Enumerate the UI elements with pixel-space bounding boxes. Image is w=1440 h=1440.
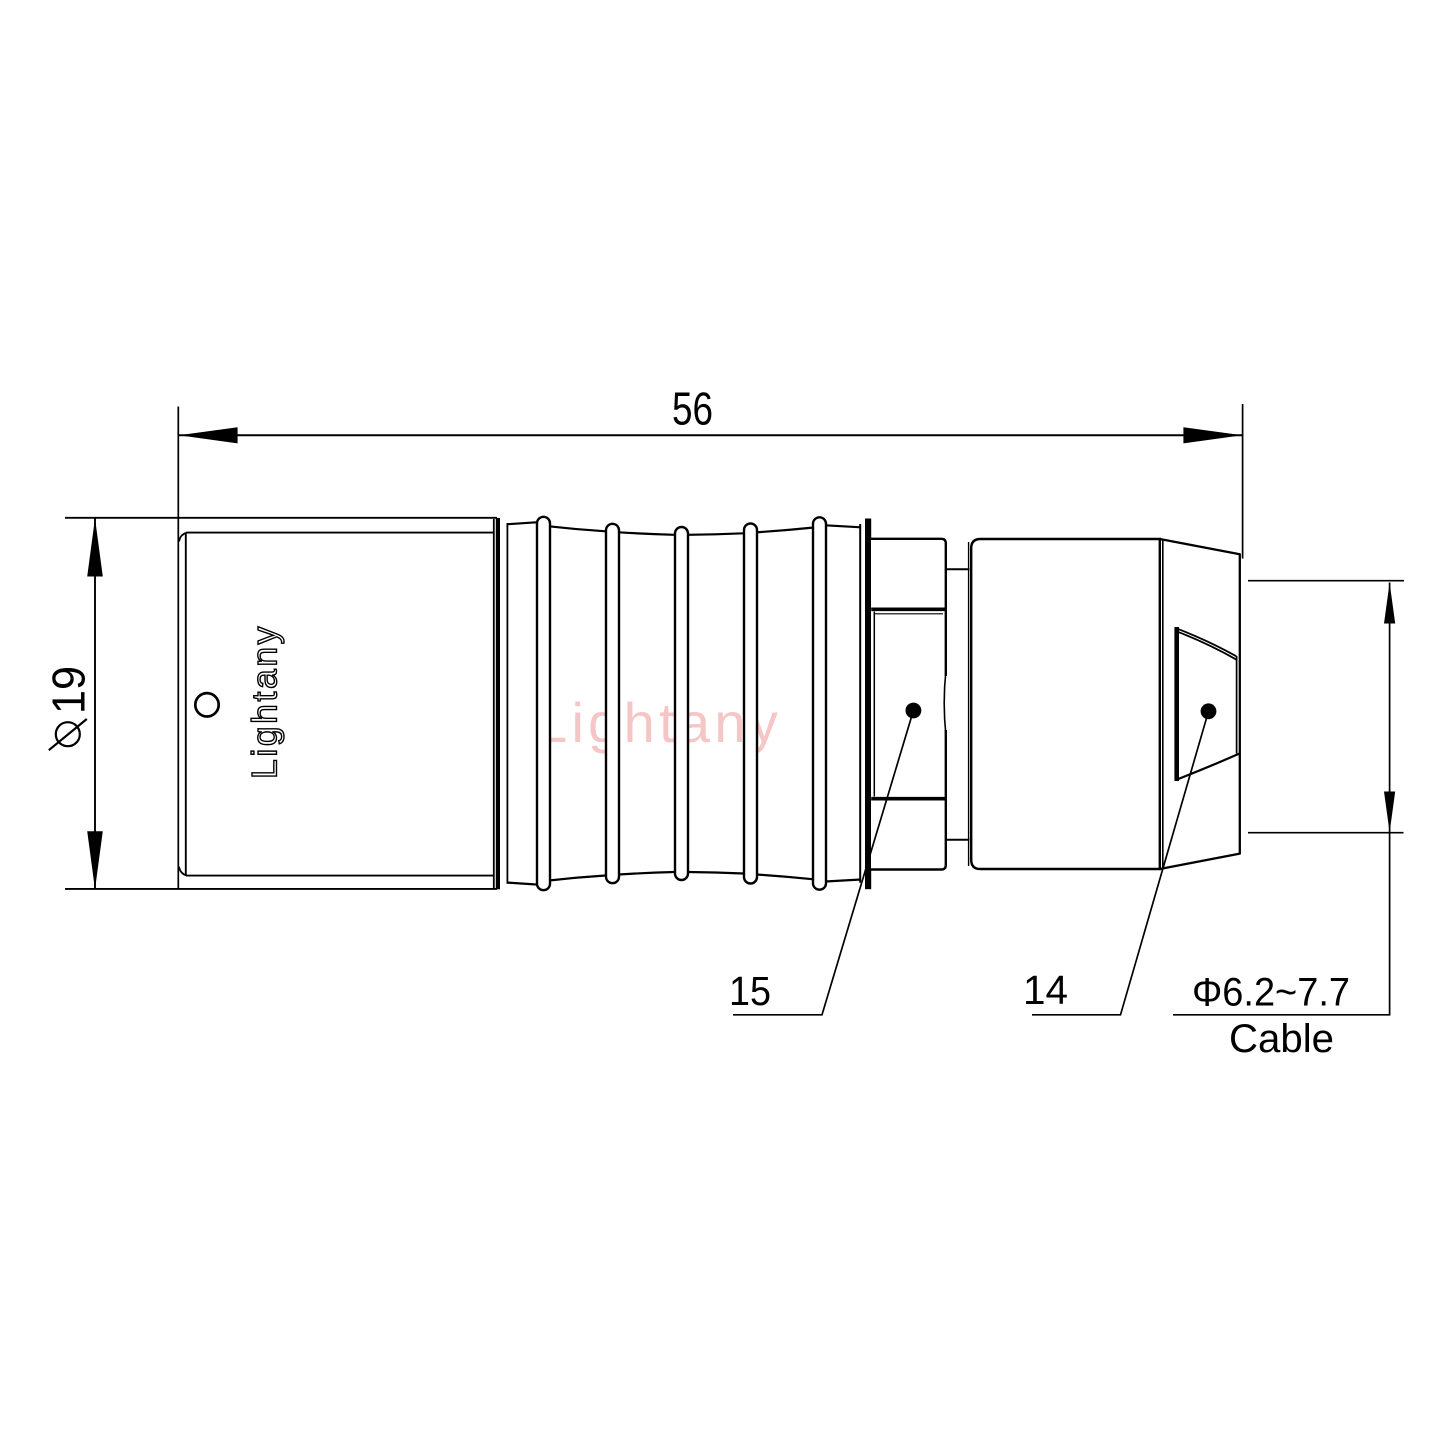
svg-text:15: 15: [729, 968, 771, 1014]
svg-text:14: 14: [1023, 967, 1068, 1013]
svg-text:Lightany: Lightany: [245, 624, 285, 779]
svg-text:56: 56: [672, 382, 713, 434]
svg-text:19: 19: [43, 666, 95, 714]
svg-text:Cable: Cable: [1229, 1017, 1334, 1061]
svg-text:Φ6.2~7.7: Φ6.2~7.7: [1192, 971, 1350, 1015]
